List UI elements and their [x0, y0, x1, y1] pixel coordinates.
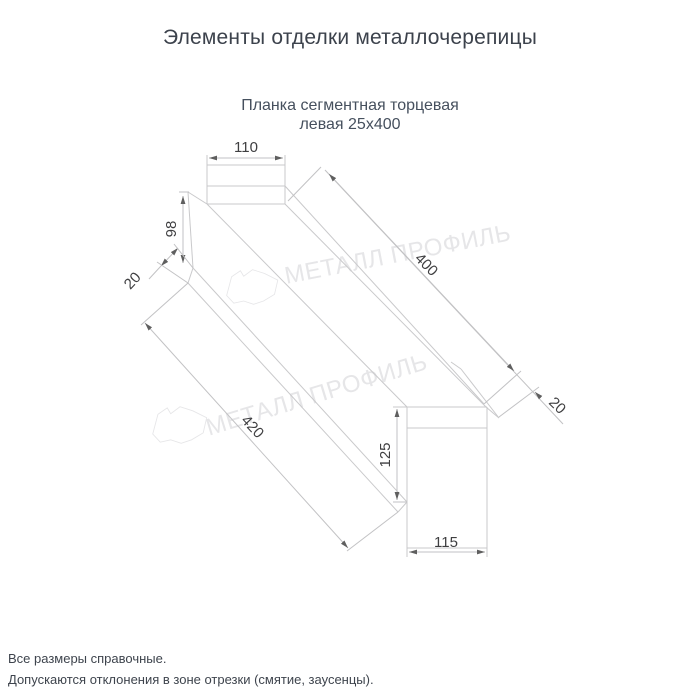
dim-125-label: 125 [377, 442, 394, 467]
drawing-page: Элементы отделки металлочерепицы Планка … [0, 0, 700, 700]
dim-20-bottom-label: 20 [545, 394, 569, 418]
dimension-lines [141, 158, 563, 552]
brand-logo-watermark [227, 270, 278, 305]
technical-drawing: 110 98 20 400 20 420 125 115 [0, 0, 700, 700]
dim-420-label: 420 [238, 412, 268, 442]
dim-20-top-label: 20 [121, 269, 145, 293]
dim-110-label: 110 [234, 139, 258, 156]
dim-115-label: 115 [434, 534, 458, 551]
footer-note-1: Все размеры справочные. [8, 648, 688, 669]
dim-98-label: 98 [163, 221, 180, 238]
dimension-labels: 110 98 20 400 20 420 125 115 [121, 139, 569, 551]
footer-notes: Все размеры справочные. Допускаются откл… [8, 648, 688, 690]
part-outline [188, 155, 499, 557]
brand-logo-watermark [153, 407, 207, 444]
footer-note-2: Допускаются отклонения в зоне отрезки (с… [8, 669, 688, 690]
dim-400-label: 400 [411, 250, 441, 280]
